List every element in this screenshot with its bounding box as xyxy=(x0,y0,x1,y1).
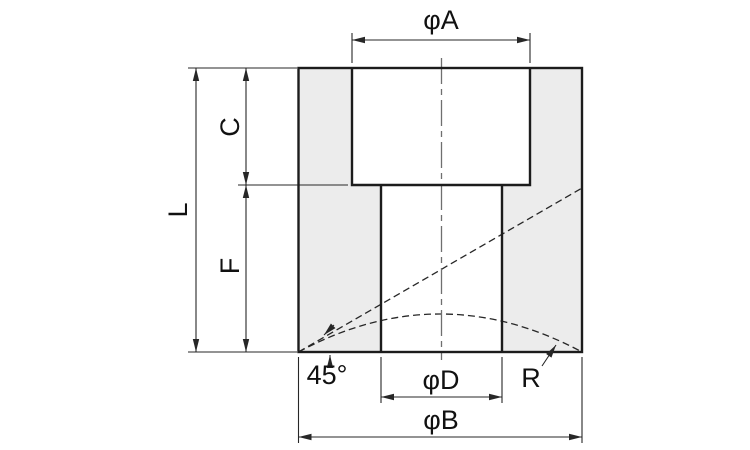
technical-drawing: φA L C F φD φ xyxy=(0,0,750,450)
dim-label-phi-b: φB xyxy=(423,405,459,435)
radius-label: R xyxy=(521,363,541,393)
dim-label-phi-d: φD xyxy=(422,365,459,395)
dimension-c: C xyxy=(215,68,246,185)
dimension-f: F xyxy=(215,185,246,352)
part-body xyxy=(238,58,582,360)
dimension-phi-d: φD xyxy=(381,357,502,403)
dimension-l: L xyxy=(163,68,297,352)
dim-label-phi-a: φA xyxy=(423,5,459,35)
dim-label-l: L xyxy=(163,202,193,217)
angle-label: 45° xyxy=(307,360,348,390)
dimension-phi-a: φA xyxy=(352,5,530,63)
dim-label-f: F xyxy=(215,258,245,275)
drawing-canvas: φA L C F φD φ xyxy=(0,0,750,450)
dim-label-c: C xyxy=(215,117,245,137)
